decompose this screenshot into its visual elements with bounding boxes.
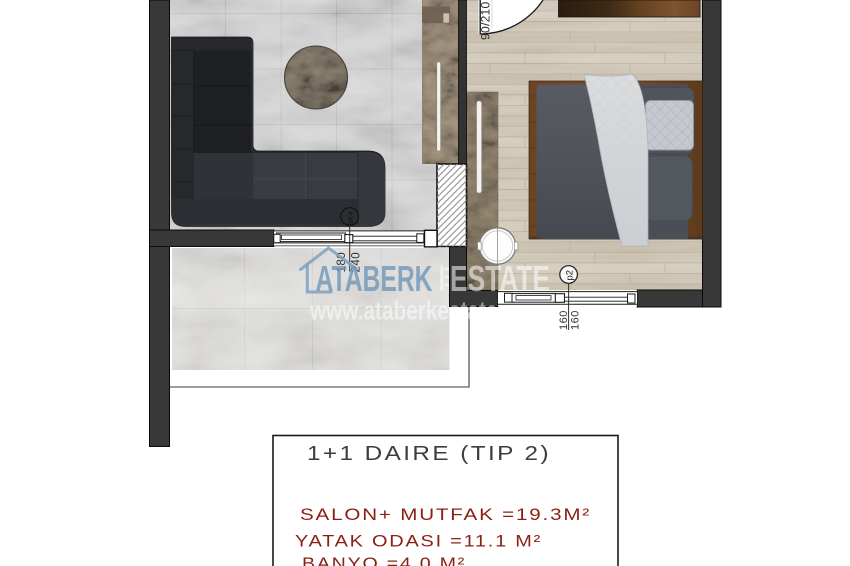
svg-text:1+1 DAIRE (TIP 2): 1+1 DAIRE (TIP 2)	[307, 443, 551, 465]
svg-text:ESTATE: ESTATE	[450, 258, 550, 299]
svg-text:ATABERK: ATABERK	[316, 258, 433, 299]
svg-text:YATAK ODASI =11.1 M²: YATAK ODASI =11.1 M²	[295, 532, 542, 551]
svg-text:160: 160	[558, 310, 570, 330]
svg-text:BANYO =4.0 M²: BANYO =4.0 M²	[302, 554, 466, 566]
svg-text:www.ataberkestate.com: www.ataberkestate.com	[309, 298, 546, 326]
svg-text:160: 160	[569, 310, 581, 330]
svg-text:90/210: 90/210	[479, 1, 493, 40]
svg-text:SK4: SK4	[346, 211, 355, 226]
svg-text:p2: p2	[564, 270, 575, 281]
svg-text:SALON+ MUTFAK =19.3M²: SALON+ MUTFAK =19.3M²	[300, 505, 591, 524]
